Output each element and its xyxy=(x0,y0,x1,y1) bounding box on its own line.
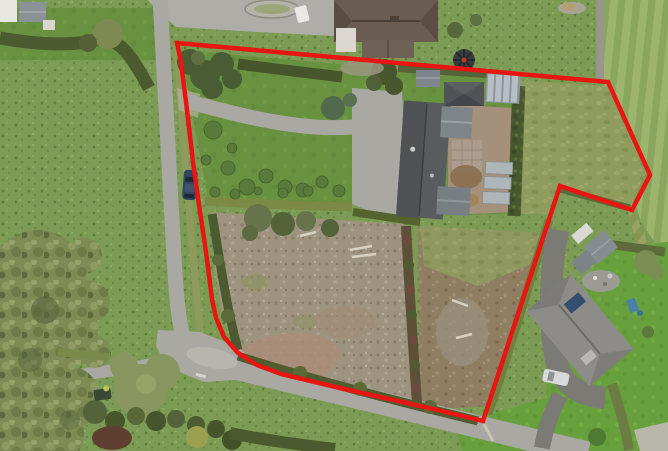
pyramid-roof-shed xyxy=(444,82,484,106)
top-left-property xyxy=(0,0,158,60)
white-building xyxy=(0,0,17,22)
blue-conifer xyxy=(321,96,345,120)
house-wall xyxy=(336,28,356,52)
aerial-photo-frame xyxy=(0,0,668,451)
small-shed xyxy=(416,70,440,87)
small-greenhouses xyxy=(482,161,512,204)
neighbor-garden-clutter xyxy=(558,2,586,14)
mid-shed xyxy=(440,106,473,139)
yellow-bush xyxy=(186,426,208,448)
greenhouse-block xyxy=(485,73,520,104)
round-bush xyxy=(588,428,606,446)
stone-wall xyxy=(596,0,604,83)
lower-shed xyxy=(436,186,470,216)
maroon-bush xyxy=(92,426,132,450)
chimney xyxy=(390,16,399,22)
aerial-photo xyxy=(0,0,668,451)
